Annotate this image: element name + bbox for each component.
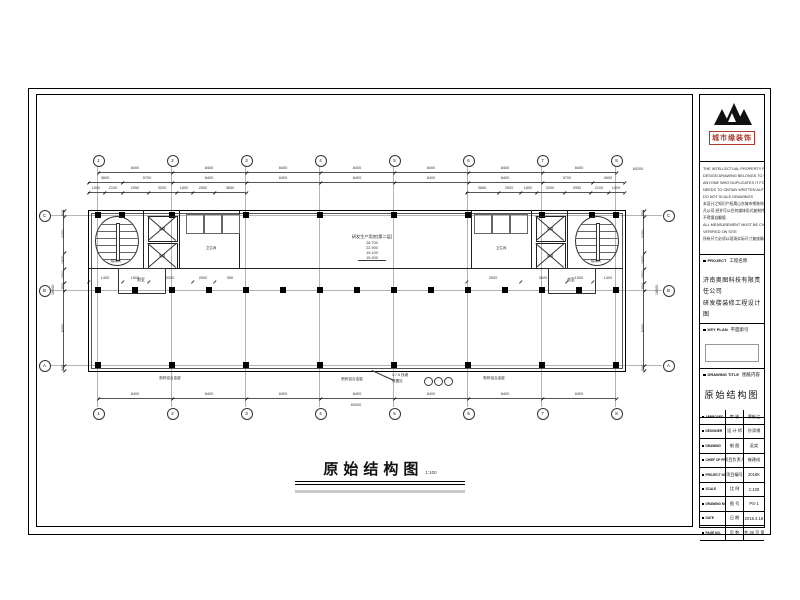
grid-bubble: 8: [611, 155, 623, 167]
grid-bubble: 3: [241, 155, 253, 167]
approval-row: APPROVED审 核贾彬江: [700, 410, 764, 425]
detail-ref-circle-icon: [434, 377, 443, 386]
grid-bubble: 5: [389, 408, 401, 420]
row-label-cn: 页 数: [725, 526, 744, 540]
keyplan-label-en: KEY PLAN: [708, 327, 728, 332]
dimension-label: 8400: [273, 393, 293, 397]
core-partition: [179, 211, 180, 268]
approval-row: PROJECT NO.项目编号2016K: [700, 468, 764, 483]
row-value: 孙添祺: [744, 428, 764, 434]
keyplan-section: KEY PLAN平面索引: [700, 324, 764, 369]
dimension-label: 3200: [540, 187, 560, 191]
wc-stall: [492, 214, 510, 234]
keyplan-label-cn: 平面索引: [731, 327, 749, 332]
grid-bubble: 6: [463, 155, 475, 167]
column-marker: [539, 287, 545, 293]
column-marker: [243, 212, 249, 218]
drawing-canvas: 1234567812345678CBACBA840084008400840084…: [0, 0, 800, 600]
grid-bubble: 1: [93, 155, 105, 167]
grid-bubble: A: [663, 360, 675, 372]
column-marker: [280, 287, 286, 293]
bullet-icon: [702, 532, 704, 534]
bullet-icon: [702, 459, 704, 461]
dimension-label: 950: [642, 276, 646, 296]
wc-label: 卫生间: [196, 246, 226, 251]
approval-row: DATE日 期2016.4.18: [700, 512, 764, 527]
dimension-label: 3600: [95, 177, 115, 181]
column-marker: [613, 287, 619, 293]
bullet-icon: [702, 488, 704, 490]
column-marker: [95, 287, 101, 293]
column-marker: [465, 362, 471, 368]
logo-section: 城市缘装饰: [700, 95, 764, 162]
dimension-label: 950: [62, 276, 66, 296]
column-marker: [317, 212, 323, 218]
approval-table: APPROVED审 核贾彬江DESIGNER设 计 师孙添祺DRAWING制 图…: [700, 410, 764, 541]
bullet-icon: [702, 474, 704, 476]
row-value: 1:100: [744, 487, 764, 492]
core-partition: [471, 211, 472, 268]
dimension-label: 3650: [220, 187, 240, 191]
keyplan-label: KEY PLAN平面索引: [700, 324, 764, 333]
disclaimer-line: DESIGN DRAWING BELONGS TO DECORATION CO.…: [703, 173, 761, 180]
room-label: 研发生产用房(第二层): [340, 234, 404, 240]
plan-title-text: 原始结构图: [323, 462, 423, 478]
dimension-label: 8400: [199, 167, 219, 171]
dimension-line: [466, 192, 624, 193]
grid-bubble: 7: [537, 155, 549, 167]
grid-bubble: 5: [389, 155, 401, 167]
level-value: 22.900: [358, 246, 386, 250]
project-name-line2: 研发楼装修工程设计图: [703, 299, 761, 322]
plan-title-scale: 1:100: [425, 470, 436, 475]
dimension-label: 1800: [174, 187, 194, 191]
lobby-label: 前室: [118, 278, 164, 283]
dimension-label: 1800: [518, 187, 538, 191]
row-value: 2016.4.18: [744, 516, 764, 521]
grid-bubble: B: [39, 285, 51, 297]
stair-divider: [596, 223, 600, 261]
dimension-line: [98, 398, 616, 399]
dimension-label: 8400: [421, 167, 441, 171]
project-section: PROJECT工程名称 济南奥图科技有限责任公司 研发楼装修工程设计图: [700, 255, 764, 324]
row-value: 2016K: [744, 472, 764, 477]
dimension-label: 5700: [557, 177, 577, 181]
level-value: 26.700: [358, 241, 386, 245]
row-label-en: DATE: [700, 516, 725, 520]
approval-row: PAGE NO.页 数共 26 页 第 4 页: [700, 526, 764, 541]
row-label-en: PROJECT NO.: [700, 473, 725, 477]
row-label-en: DRAWING: [700, 444, 725, 448]
row-label-en: APPROVED: [700, 415, 725, 419]
disclaimer-line: 所有尺寸必须以现场实际尺寸复核确认无误: [703, 236, 761, 243]
company-name: 城市缘装饰: [709, 131, 755, 145]
row-value: 共 26 页 第 4 页: [744, 530, 764, 536]
dimension-label: 3200: [152, 187, 172, 191]
approval-row: CHIEF OF PRO项目负责人崔建成: [700, 454, 764, 469]
dimension-total: 18000: [52, 280, 56, 300]
column-marker: [169, 362, 175, 368]
dimension-total: 60200: [628, 168, 648, 172]
grid-bubble: 8: [611, 408, 623, 420]
dimension-label: 8400: [199, 393, 219, 397]
project-label: PROJECT工程名称: [700, 255, 764, 264]
level-value: 19.100: [358, 251, 386, 255]
bullet-icon: [702, 445, 704, 447]
dimension-label: 8400: [347, 393, 367, 397]
column-marker: [502, 287, 508, 293]
dimension-total: 60200: [346, 404, 366, 408]
column-marker: [428, 287, 434, 293]
dimension-total: 18000: [656, 280, 660, 300]
drawing-title-value: 原始结构图: [700, 388, 764, 401]
disclaimer-line: 不得擅自翻版.: [703, 215, 761, 222]
dimension-label: 2100: [103, 187, 123, 191]
bullet-icon: [703, 374, 706, 377]
elevator-label: 电梯: [536, 253, 564, 258]
column-marker: [317, 362, 323, 368]
keyplan-box: [705, 344, 759, 362]
company-logo-icon: [714, 103, 750, 125]
elevator-label: 电梯: [148, 226, 176, 231]
disclaimer-line: DO NOT SCALE DRAWINGS: [703, 194, 761, 201]
grid-bubble: 1: [93, 408, 105, 420]
column-marker: [95, 212, 101, 218]
dimension-label: 3600: [598, 177, 618, 181]
wc-stall: [186, 214, 204, 234]
dimension-label: 2500: [193, 187, 213, 191]
window-label: 断桥铝合金窗: [474, 376, 514, 381]
elevator-label: 电梯: [148, 253, 176, 258]
bullet-icon: [702, 503, 704, 505]
title-underline-thin: [295, 484, 465, 485]
core-partition: [567, 211, 568, 268]
core-partition: [531, 211, 532, 268]
dimension-label: 8400: [421, 177, 441, 181]
dimension-label: 4200: [62, 224, 66, 244]
slope-note-line2: 详图见: [392, 379, 426, 384]
dimension-line: [98, 172, 616, 173]
project-label-en: PROJECT: [708, 258, 727, 263]
project-name-line1: 济南奥图科技有限责任公司: [703, 276, 761, 299]
disclaimer-line: 凡公司,经许可以任何媒体形式复制传播,: [703, 208, 761, 215]
dimension-label: 8400: [642, 317, 646, 337]
detail-ref-circle-icon: [444, 377, 453, 386]
plan-title: 原始结构图1:100: [295, 458, 465, 493]
bullet-icon: [703, 329, 706, 332]
column-marker: [613, 362, 619, 368]
dimension-label: 8400: [347, 177, 367, 181]
dimension-label: 8400: [347, 167, 367, 171]
title-underline-thick: [295, 481, 465, 482]
grid-bubble: 6: [463, 408, 475, 420]
dimension-label: 8400: [421, 393, 441, 397]
disclaimer-line: 本设计之知识产权属山东城市缘装饰所有: [703, 201, 761, 208]
column-marker: [354, 287, 360, 293]
stair-label: 楼梯间: [95, 258, 137, 263]
grid-bubble: 2: [167, 408, 179, 420]
logo-triangle-inner: [728, 113, 736, 122]
row-label-en: CHIEF OF PRO: [700, 458, 725, 462]
dimension-label: 8400: [495, 177, 515, 181]
row-value: 崔建成: [744, 457, 764, 463]
bullet-icon: [702, 416, 704, 418]
drawing-title-label: DRAWING TITLE图纸内容: [700, 369, 764, 378]
row-label-cn: 图 号: [725, 497, 744, 511]
dimension-label: 8400: [495, 393, 515, 397]
grid-bubble: C: [663, 210, 675, 222]
dimension-line: [88, 192, 246, 193]
dimension-label: 8400: [569, 393, 589, 397]
column-marker: [169, 287, 175, 293]
row-label-cn: 项目编号: [725, 468, 744, 482]
slope-note-line1: 1:7.5 找坡: [392, 373, 426, 378]
column-marker: [95, 362, 101, 368]
level-value: 15.300: [358, 256, 386, 261]
row-label-cn: 设 计 师: [725, 425, 744, 439]
grid-bubble: 4: [315, 408, 327, 420]
grid-bubble: 2: [167, 155, 179, 167]
grid-bubble: A: [39, 360, 51, 372]
window-label: 断桥铝合金窗: [332, 377, 372, 382]
grid-bubble: 4: [315, 155, 327, 167]
dimension-label: 600: [642, 203, 646, 223]
wc-stall: [474, 214, 492, 234]
window-label: 断桥铝合金窗: [150, 376, 190, 381]
dimension-label: 8400: [125, 393, 145, 397]
column-marker: [243, 287, 249, 293]
core-partition: [143, 211, 144, 268]
row-label-cn: 日 期: [725, 512, 744, 526]
column-marker: [206, 287, 212, 293]
dimension-label: 1500: [606, 187, 626, 191]
column-marker: [539, 362, 545, 368]
row-label-cn: 项目负责人: [725, 454, 744, 468]
row-label-cn: 制 图: [725, 439, 744, 453]
approval-row: SCALE比 例1:100: [700, 483, 764, 498]
dimension-label: 8400: [273, 167, 293, 171]
wc-label: 卫生间: [486, 246, 516, 251]
row-label-en: SCALE: [700, 487, 725, 491]
wc-stall: [204, 214, 222, 234]
project-name: 济南奥图科技有限责任公司 研发楼装修工程设计图: [700, 276, 764, 322]
project-label-cn: 工程名称: [729, 258, 747, 263]
title-underline-gray: [295, 490, 465, 493]
column-marker: [391, 287, 397, 293]
bullet-icon: [702, 517, 704, 519]
dimension-label: 2950: [125, 187, 145, 191]
column-marker: [391, 212, 397, 218]
dimension-label: 8400: [125, 167, 145, 171]
title-block: 城市缘装饰 THE INTELLECTUAL PROPERTY RIGHT OF…: [699, 94, 765, 528]
disclaimer-line: THE INTELLECTUAL PROPERTY RIGHT OF THIS: [703, 166, 761, 173]
disclaimer-line: ANYONE WHO DUPLICATES IT FOR USE: [703, 180, 761, 187]
column-marker: [391, 362, 397, 368]
disclaimer-line: VERIFIED ON SITE: [703, 229, 761, 236]
lobby-label: 前室: [548, 278, 594, 283]
grid-bubble: 7: [537, 408, 549, 420]
logo-triangle: [736, 109, 752, 125]
row-value: 吴笑: [744, 443, 764, 449]
drawing-title-label-cn: 图纸内容: [742, 372, 760, 377]
row-label-en: DRAWING NO.: [700, 502, 725, 506]
column-marker: [613, 212, 619, 218]
row-value: 贾彬江: [744, 414, 764, 420]
wc-stall: [510, 214, 528, 234]
stair-label: 楼梯间: [575, 258, 617, 263]
dimension-label: 2500: [499, 187, 519, 191]
row-label-en: DESIGNER: [700, 429, 725, 433]
dimension-label: 600: [642, 357, 646, 377]
bullet-icon: [703, 260, 706, 263]
stair-divider: [116, 223, 120, 261]
dimension-label: 4200: [642, 224, 646, 244]
elevator-label: 电梯: [536, 226, 564, 231]
column-marker: [317, 287, 323, 293]
dimension-label: 5700: [137, 177, 157, 181]
dimension-label: 8400: [495, 167, 515, 171]
row-label-cn: 审 核: [725, 410, 744, 424]
column-marker: [465, 287, 471, 293]
row-value: PS-1: [744, 501, 764, 506]
dimension-label: 8400: [569, 167, 589, 171]
floor-plan: 1234567812345678CBACBA840084008400840084…: [0, 0, 800, 600]
grid-bubble: B: [663, 285, 675, 297]
dimension-label: 3650: [472, 187, 492, 191]
row-label-en: PAGE NO.: [700, 531, 725, 535]
grid-bubble: C: [39, 210, 51, 222]
dimension-label: 600: [62, 357, 66, 377]
dimension-label: 8400: [199, 177, 219, 181]
approval-row: DESIGNER设 计 师孙添祺: [700, 425, 764, 440]
wc-stall: [222, 214, 240, 234]
dimension-label: 8400: [62, 317, 66, 337]
detail-ref-circle-icon: [424, 377, 433, 386]
dimension-label: 2950: [567, 187, 587, 191]
disclaimer-line: ALL MEASUREMENT MUST BE CHECKED AND: [703, 222, 761, 229]
dimension-label: 8400: [273, 177, 293, 181]
dimension-label: 600: [62, 203, 66, 223]
grid-bubble: 3: [241, 408, 253, 420]
bullet-icon: [702, 430, 704, 432]
row-label-cn: 比 例: [725, 483, 744, 497]
drawing-title-label-en: DRAWING TITLE: [708, 372, 740, 377]
approval-row: DRAWING制 图吴笑: [700, 439, 764, 454]
disclaimer-text: THE INTELLECTUAL PROPERTY RIGHT OF THISD…: [700, 162, 764, 255]
column-marker: [243, 362, 249, 368]
disclaimer-line: NEEDS TO OBTAIN WRITTEN AUTHORIZATION: [703, 187, 761, 194]
approval-row: DRAWING NO.图 号PS-1: [700, 497, 764, 512]
